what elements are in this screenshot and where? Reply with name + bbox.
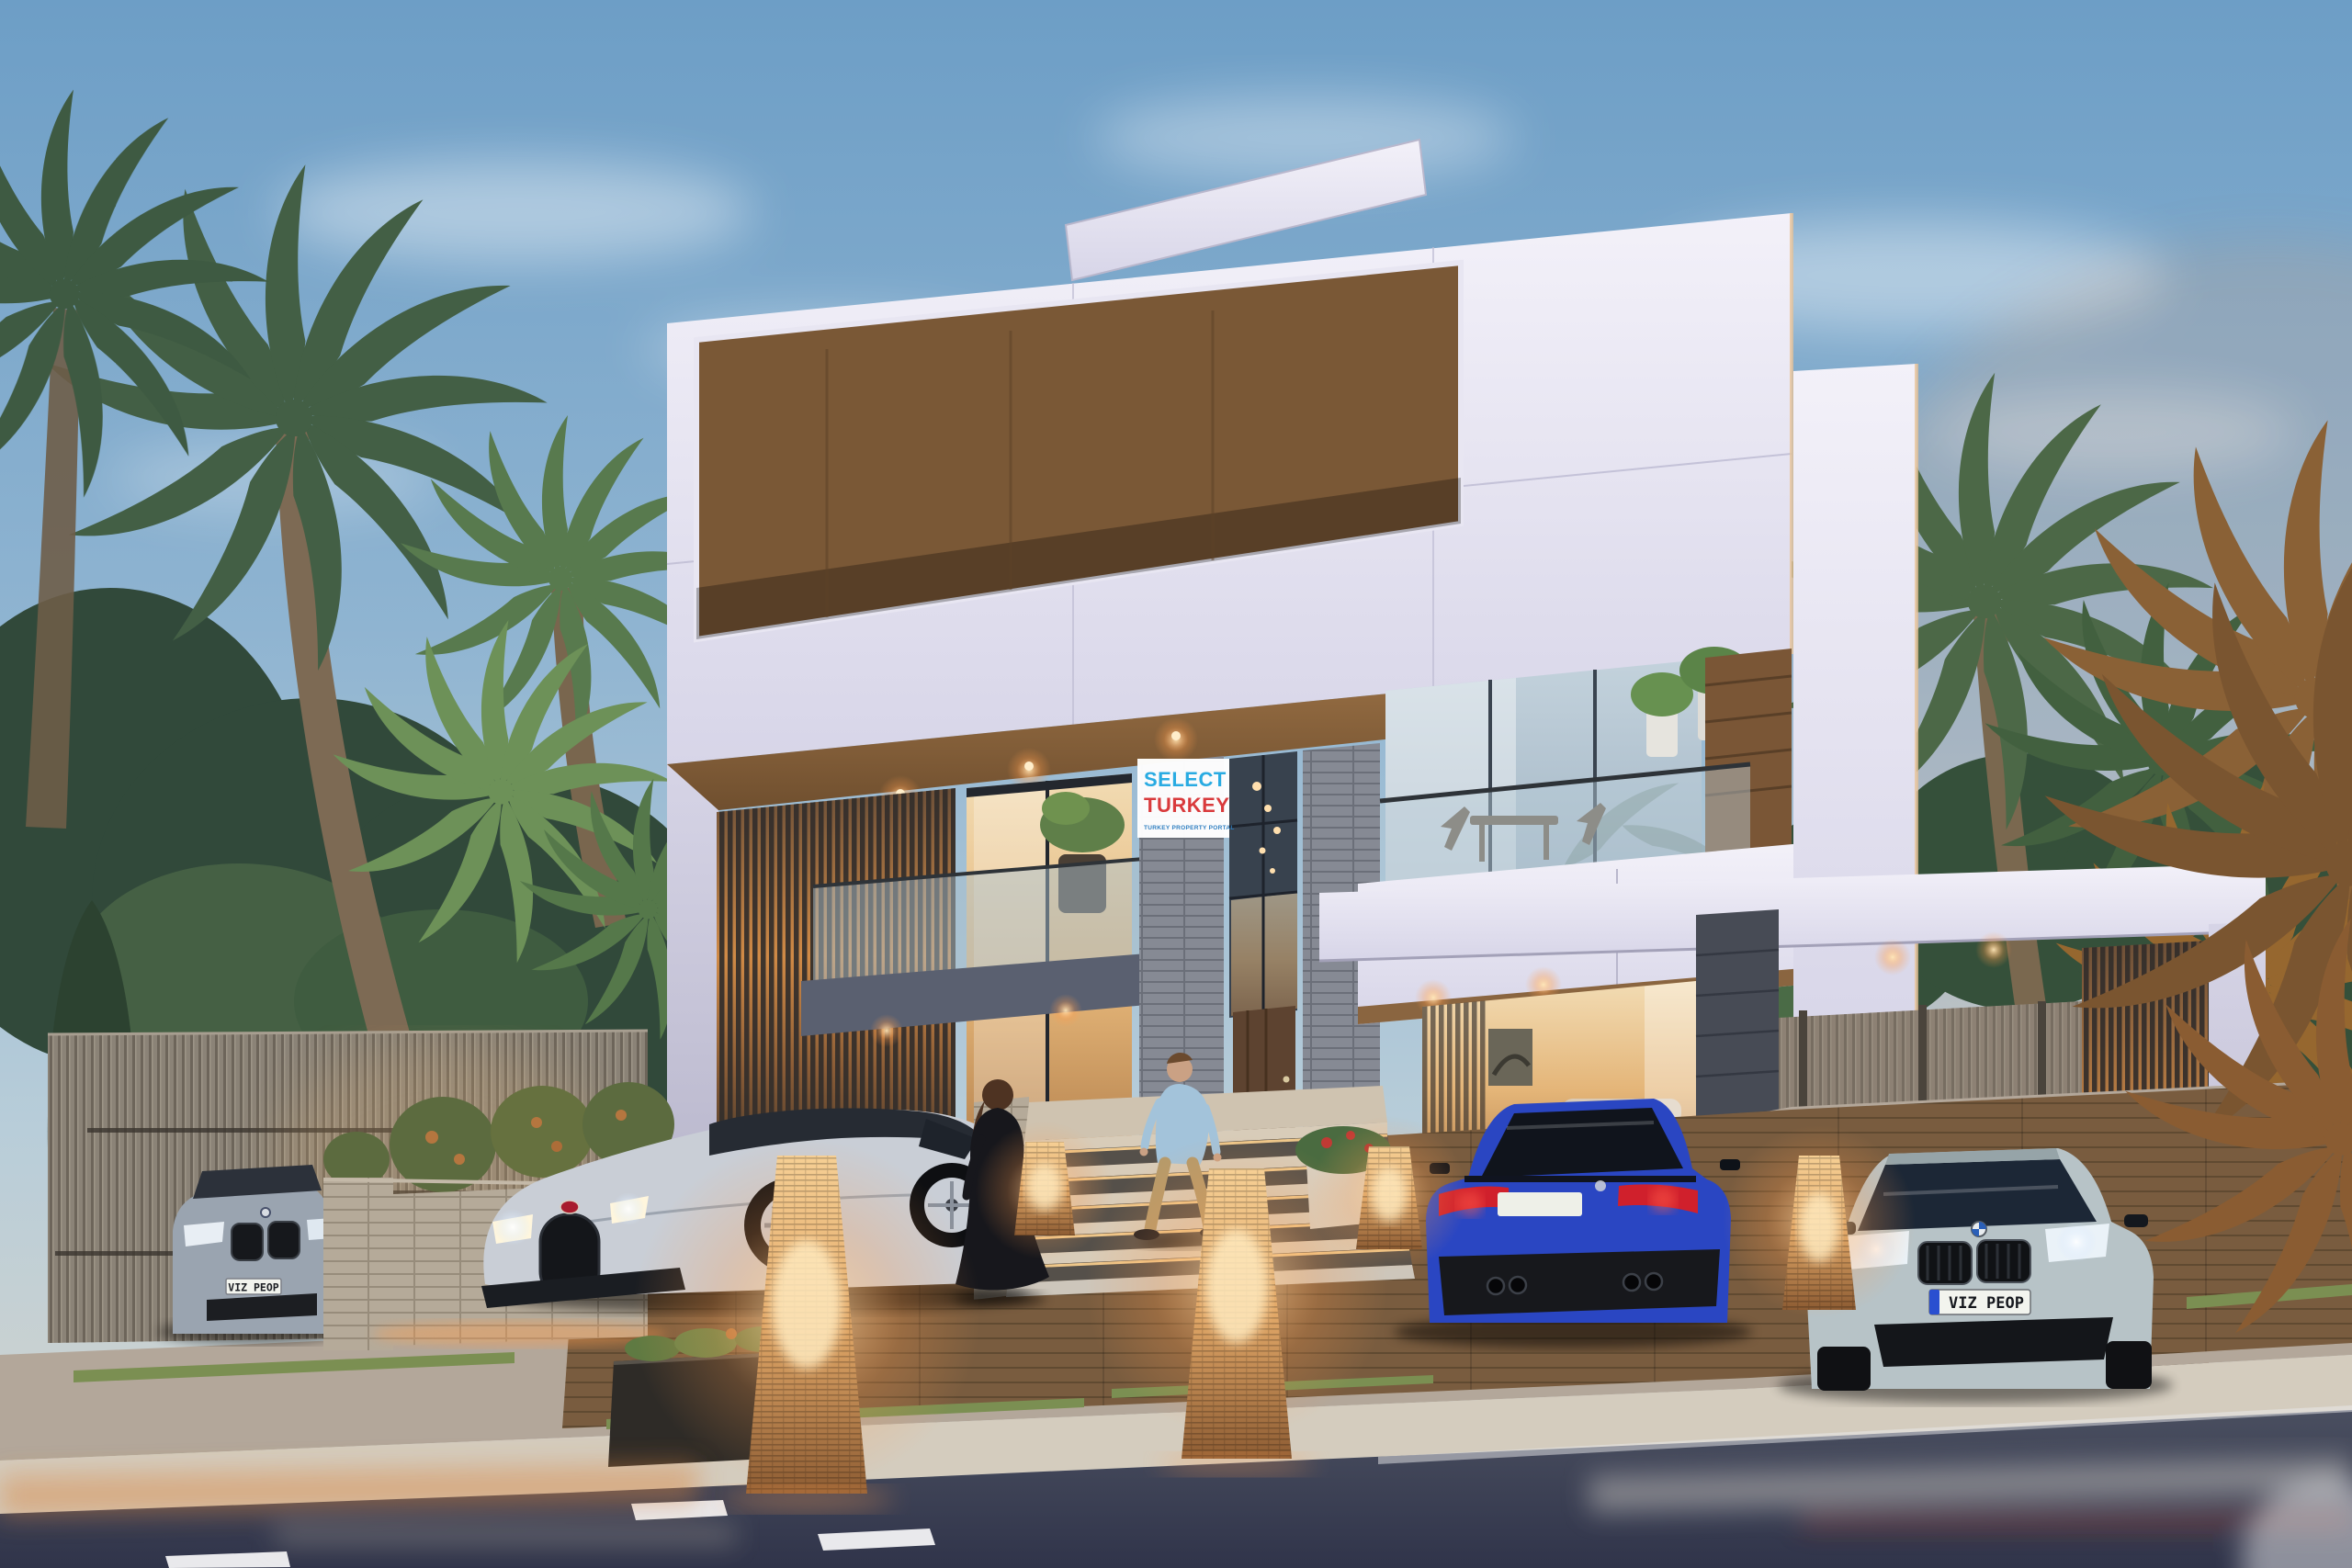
left-wall-return: [667, 764, 718, 1168]
watermark-sign: SELECT TURKEY TURKEY PROPERTY PORTAL: [1137, 759, 1235, 838]
watermark-line3: TURKEY PROPERTY PORTAL: [1144, 825, 1235, 831]
bugatti-badge: [560, 1201, 579, 1213]
watermark-line2: TURKEY: [1144, 794, 1229, 817]
license-plate-blue-car: [1498, 1192, 1582, 1216]
license-plate-left: VIZ PEOP: [226, 1279, 281, 1294]
lamp-near-blue-car: [1311, 1116, 1467, 1272]
villa-render-scene: VIZ PEOP: [0, 0, 2352, 1568]
svg-text:VIZ PEOP: VIZ PEOP: [1949, 1294, 2024, 1313]
license-plate-carport: VIZ PEOP: [1929, 1290, 2030, 1314]
svg-text:VIZ PEOP: VIZ PEOP: [228, 1281, 278, 1294]
watermark-line1: SELECT: [1144, 768, 1227, 791]
lamp-near-carport: [1723, 1125, 1916, 1318]
